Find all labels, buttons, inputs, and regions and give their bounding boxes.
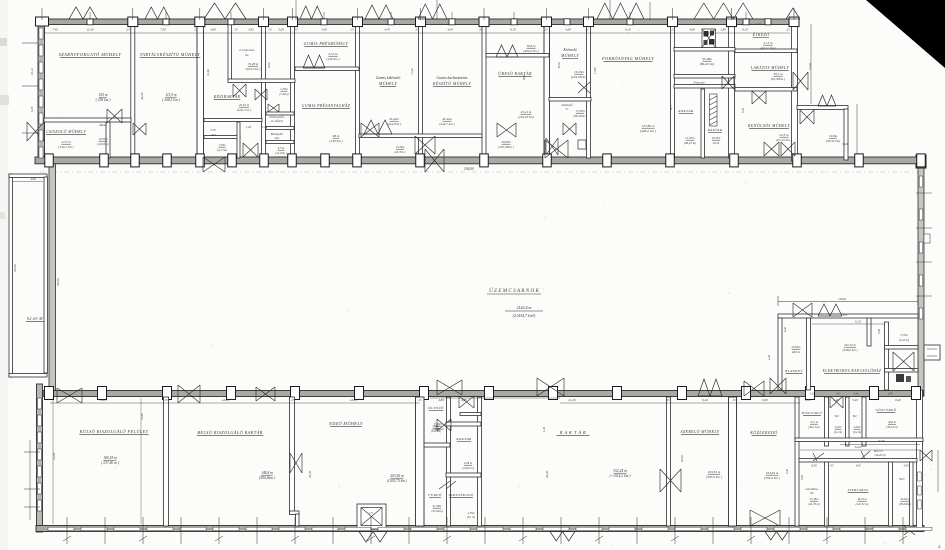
svg-text:4,40: 4,40 — [887, 392, 893, 396]
svg-text:GUMIS PRÉSANYAGHÁZ: GUMIS PRÉSANYAGHÁZ — [302, 103, 351, 108]
svg-text:20,6 m: 20,6 m — [888, 420, 896, 424]
svg-text:MŰHELY: MŰHELY — [378, 81, 398, 86]
svg-text:25: 25 — [350, 28, 354, 32]
svg-text:(78,04£m): (78,04£m) — [899, 502, 911, 506]
svg-text:95: 95 — [666, 398, 670, 402]
svg-text:ÉTKEZŐ: ÉTKEZŐ — [752, 32, 770, 37]
svg-text:TARTÓZKODÓ: TARTÓZKODÓ — [448, 492, 474, 497]
svg-text:KÉZIRAKTÁR: KÉZIRAKTÁR — [213, 94, 241, 99]
svg-text:EDZŐ MŰHELY: EDZŐ MŰHELY — [328, 421, 363, 426]
svg-text:RAKTÁR: RAKTÁR — [677, 108, 694, 113]
svg-text:3,10: 3,10 — [809, 392, 815, 396]
svg-text:W.C: W.C — [899, 477, 905, 481]
svg-text:Mosó: Mosó — [98, 123, 107, 127]
svg-text:4,40: 4,40 — [786, 469, 789, 474]
svg-text:FÜRDŐ: FÜRDŐ — [427, 492, 442, 497]
svg-text:R A K T Á R: R A K T Á R — [559, 430, 586, 435]
svg-text:m.: m. — [566, 107, 569, 111]
svg-text:ELEKTROMOS KAPCSOLÓHÁZ: ELEKTROMOS KAPCSOLÓHÁZ — [822, 368, 882, 373]
svg-text:ÖLTÖZŐ: ÖLTÖZŐ — [428, 405, 444, 410]
svg-text:25: 25 — [164, 398, 168, 402]
svg-text:KENŐCSÖS MŰHELY: KENŐCSÖS MŰHELY — [747, 123, 790, 128]
svg-text:Gumis kikészítő: Gumis kikészítő — [376, 76, 402, 80]
svg-text:18,16 m: 18,16 m — [857, 497, 866, 501]
svg-text:Gumis karbantartás: Gumis karbantartás — [436, 76, 468, 80]
svg-text:105 m: 105 m — [99, 93, 108, 97]
svg-text:25: 25 — [415, 28, 419, 32]
svg-text:CSISZOLÓ MŰHELY: CSISZOLÓ MŰHELY — [46, 129, 87, 134]
svg-text:SZERELŐ MŰHELY: SZERELŐ MŰHELY — [681, 429, 720, 434]
svg-text:Folyosó: Folyosó — [693, 81, 705, 85]
svg-text:3,00: 3,00 — [903, 464, 909, 468]
svg-text:(40,1 £m): (40,1 £m) — [808, 425, 819, 429]
svg-text:25: 25 — [294, 28, 298, 32]
svg-text:RAKTÁR: RAKTÁR — [707, 127, 722, 132]
svg-text:8,50: 8,50 — [811, 464, 817, 468]
svg-text:3,40: 3,40 — [853, 392, 859, 396]
svg-text:2.Csarnok-: 2.Csarnok- — [239, 48, 255, 52]
svg-text:m. műhely: m. műhely — [271, 119, 284, 123]
svg-text:1,40: 1,40 — [542, 426, 546, 432]
svg-text:25: 25 — [268, 28, 272, 32]
svg-text:6,40: 6,40 — [784, 327, 787, 332]
svg-text:ÜRESŐ RAKTÁR: ÜRESŐ RAKTÁR — [498, 71, 532, 76]
svg-text:2,70m: 2,70m — [280, 87, 287, 91]
svg-text:5,00: 5,00 — [741, 107, 745, 113]
svg-text:5,90: 5,90 — [800, 474, 804, 480]
svg-text:GŐZFÜRDŐ: GŐZFÜRDŐ — [876, 407, 897, 412]
svg-text:KÜLSŐ KISZOLGÁLÓ FELÜLET: KÜLSŐ KISZOLGÁLÓ FELÜLET — [79, 429, 149, 434]
svg-text:(122,52 m): (122,52 m) — [856, 502, 869, 506]
svg-text:1,20: 1,20 — [246, 125, 252, 129]
svg-text:(4,1 £m): (4,1 £m) — [217, 148, 227, 152]
svg-text:1,40: 1,40 — [262, 125, 268, 129]
svg-text:KÖZLEKEDŐ: KÖZLEKEDŐ — [749, 430, 777, 435]
svg-text:5,75m: 5,75m — [900, 333, 907, 337]
svg-text:(45,7£m ): (45,7£m ) — [394, 150, 405, 154]
svg-text:95: 95 — [479, 28, 483, 32]
svg-text:25: 25 — [194, 28, 198, 32]
svg-text:18,15m: 18,15m — [712, 136, 721, 140]
svg-text:BLANKET: BLANKET — [785, 369, 803, 373]
svg-text:4,75: 4,75 — [369, 512, 374, 515]
svg-text:25,18m: 25,18m — [810, 497, 819, 501]
svg-text:(140 £m ): (140 £m ) — [326, 57, 340, 61]
svg-text:29,34: 29,34 — [713, 141, 720, 145]
svg-text:MŰHELY: MŰHELY — [560, 53, 579, 58]
svg-text:25: 25 — [786, 28, 790, 32]
svg-text:(36,10 m): (36,10 m) — [886, 425, 897, 429]
svg-text:GUMIS PRÉSMŰHELY: GUMIS PRÉSMŰHELY — [304, 41, 349, 46]
svg-text:15,76m: 15,76m — [396, 145, 405, 149]
svg-text:FORRÓANYAG MŰHELY: FORRÓANYAG MŰHELY — [601, 56, 654, 61]
svg-text:MÁNGORLÓ: MÁNGORLÓ — [801, 410, 823, 415]
svg-text:(44,70 m): (44,70 m) — [808, 502, 819, 506]
svg-text:25: 25 — [671, 28, 675, 32]
svg-text:20,64 m: 20,64 m — [900, 497, 909, 501]
svg-text:1,50m: 1,50m — [218, 143, 225, 147]
svg-text:LAKATOS MŰHELY: LAKATOS MŰHELY — [750, 65, 790, 70]
svg-text:4,52m: 4,52m — [854, 426, 861, 429]
svg-text:BELSŐ KISZOLGÁLÓ RAKTÁR: BELSŐ KISZOLGÁLÓ RAKTÁR — [197, 430, 262, 435]
svg-text:(140 £m ): (140 £m ) — [329, 139, 343, 143]
svg-text:18,12 m: 18,12 m — [873, 450, 882, 453]
svg-text:KÉSZÍTŐ MŰHELY: KÉSZÍTŐ MŰHELY — [432, 81, 471, 86]
svg-text:25: 25 — [732, 398, 736, 402]
svg-text:( 238 £m ): ( 238 £m ) — [96, 98, 112, 102]
svg-text:Ü Z E M C S A R N O K: Ü Z E M C S A R N O K — [489, 286, 539, 294]
svg-text:TARTÁLYKÉSZÍTŐ MŰHELY: TARTÁLYKÉSZÍTŐ MŰHELY — [140, 52, 201, 57]
svg-text:4,40: 4,40 — [768, 355, 771, 360]
svg-text:4,75m: 4,75m — [468, 512, 475, 515]
svg-text:25: 25 — [418, 398, 422, 402]
svg-text:(7,2£m): (7,2£m) — [279, 92, 288, 96]
svg-text:25: 25 — [234, 28, 238, 32]
svg-text:25: 25 — [291, 398, 295, 402]
svg-text:(9,4 m): (9,4 m) — [853, 431, 861, 434]
svg-text:5,90: 5,90 — [878, 329, 881, 334]
svg-text:be: be — [245, 53, 249, 57]
svg-text:68 m: 68 m — [333, 134, 340, 138]
svg-text:(9,1 m): (9,1 m) — [467, 516, 475, 519]
svg-text:(46,20 m): (46,20 m) — [875, 454, 886, 457]
svg-text:SZERTÁROS: SZERTÁROS — [848, 487, 869, 492]
svg-text:SZÁRNYFORGATÓ MŰHELY: SZÁRNYFORGATÓ MŰHELY — [59, 52, 122, 57]
svg-text:(12,10m ): (12,10m ) — [275, 151, 286, 155]
svg-text:25: 25 — [544, 28, 548, 32]
svg-text:3,05: 3,05 — [843, 314, 848, 317]
svg-text:4,5 m: 4,5 m — [278, 146, 284, 150]
svg-text:27,1 m: 27,1 m — [810, 420, 818, 424]
svg-text:4,52m: 4,52m — [835, 426, 842, 429]
svg-text:2.: 2. — [938, 544, 941, 549]
svg-text:RAKTÁR: RAKTÁR — [455, 436, 472, 441]
svg-text:25: 25 — [585, 28, 589, 32]
svg-text:(9,4 m): (9,4 m) — [834, 431, 842, 434]
svg-text:W.C: W.C — [211, 133, 217, 137]
svg-text:(21,6 m): (21,6 m) — [899, 338, 909, 342]
svg-text:25: 25 — [126, 28, 130, 32]
svg-text:4,60: 4,60 — [855, 464, 861, 468]
svg-text:Krémoló: Krémoló — [562, 48, 576, 52]
svg-text:hely: hely — [275, 136, 281, 140]
